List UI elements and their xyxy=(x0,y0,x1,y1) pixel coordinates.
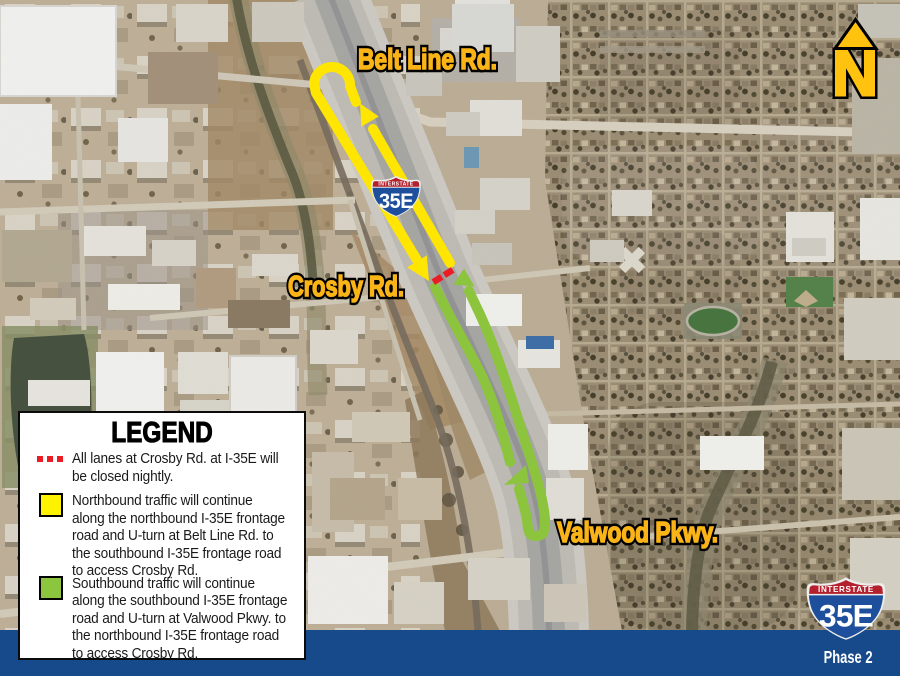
svg-text:N: N xyxy=(832,39,878,109)
svg-text:Belt Line Rd.: Belt Line Rd. xyxy=(358,44,497,76)
svg-text:Valwood Pkwy.: Valwood Pkwy. xyxy=(557,517,718,549)
svg-text:Crosby Rd.: Crosby Rd. xyxy=(288,271,404,303)
